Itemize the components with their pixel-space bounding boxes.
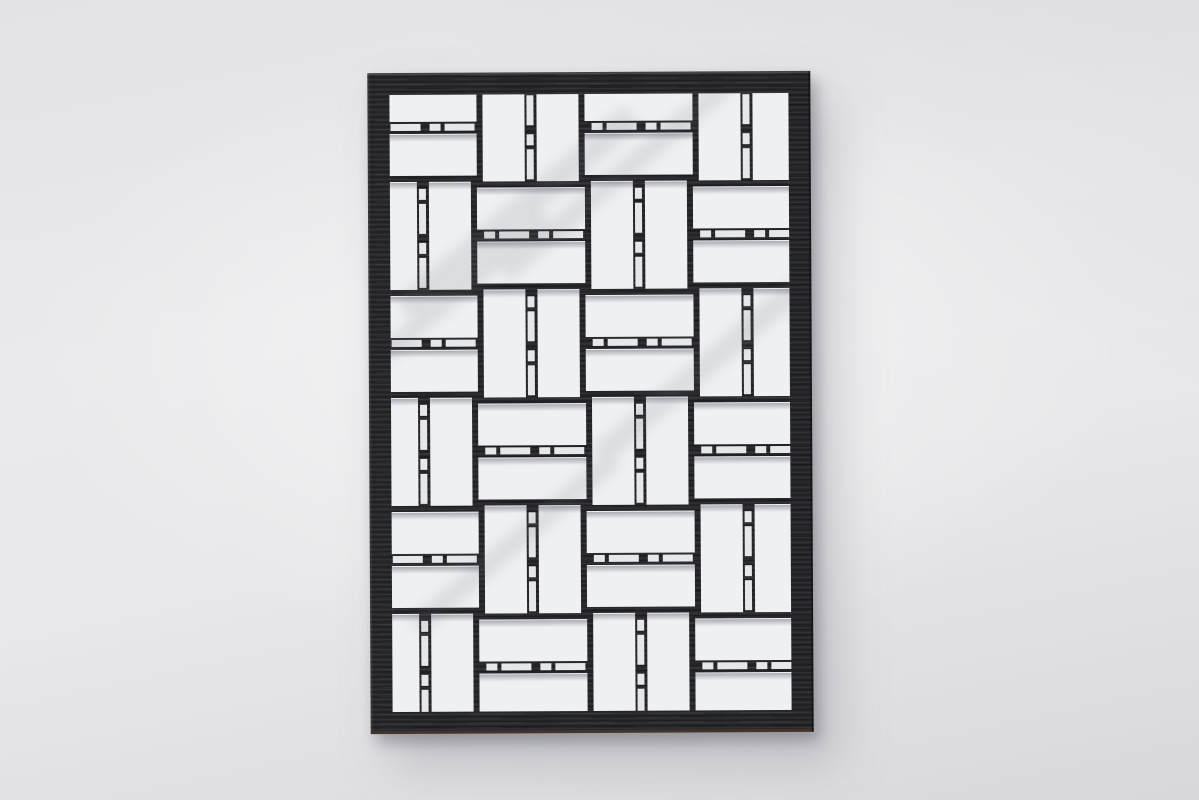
hole-shadow-sliver xyxy=(587,566,646,573)
hole-shadow-sliver xyxy=(587,512,646,519)
bead-hole xyxy=(663,554,693,561)
bead-hole xyxy=(391,124,421,131)
bead-hole xyxy=(420,405,427,416)
bead-hole xyxy=(421,636,428,666)
bead-hole xyxy=(636,473,643,503)
hole-shadow-sliver xyxy=(646,565,695,572)
bead-hole xyxy=(647,339,658,346)
hole-shadow-sliver xyxy=(592,398,634,405)
bead-hole xyxy=(421,675,428,686)
plank-hole-vertical xyxy=(539,564,581,613)
bead-hole xyxy=(700,230,711,237)
plank-hole-vertical xyxy=(646,455,688,504)
bead-hole xyxy=(430,124,441,131)
hole-shadow-sliver xyxy=(485,506,527,513)
bead-hole xyxy=(701,446,712,453)
plank-hole-vertical xyxy=(430,398,472,457)
hole-shadow-sliver xyxy=(429,183,471,190)
bead-hole xyxy=(527,149,534,179)
bead-hole xyxy=(527,296,534,307)
bead-hole xyxy=(743,133,750,144)
plank-hole-vertical xyxy=(484,348,526,397)
bead-hole xyxy=(445,124,475,131)
hole-shadow-sliver xyxy=(479,620,538,627)
bead-hole xyxy=(529,581,536,611)
hole-shadow-sliver xyxy=(694,403,753,410)
bead-hole xyxy=(419,243,426,254)
lattice-panel xyxy=(367,71,813,734)
hole-shadow-sliver xyxy=(478,404,537,411)
plank-hole-vertical xyxy=(429,182,471,241)
bead-hole xyxy=(500,447,530,454)
bead-hole xyxy=(745,580,752,610)
hole-shadow-sliver xyxy=(430,513,479,520)
hole-shadow-sliver xyxy=(701,505,743,512)
bead-hole xyxy=(528,311,535,341)
plank-hole-vertical xyxy=(645,239,687,288)
plank-hole-vertical xyxy=(430,457,472,506)
bead-hole xyxy=(555,663,585,670)
hole-shadow-sliver xyxy=(479,674,538,681)
bead-hole xyxy=(446,340,476,347)
hole-shadow-sliver xyxy=(693,187,752,194)
bead-hole xyxy=(637,620,644,631)
bead-hole xyxy=(447,556,477,563)
bead-hole xyxy=(717,662,747,669)
bead-hole xyxy=(745,565,752,576)
bead-hole xyxy=(528,365,535,395)
bead-hole xyxy=(635,242,642,253)
plank-hole-vertical xyxy=(593,613,635,672)
hole-shadow-sliver xyxy=(647,613,689,620)
plank-hole-vertical xyxy=(431,614,473,673)
bead-hole xyxy=(743,148,750,178)
bead-hole xyxy=(743,295,750,306)
hole-shadow-sliver xyxy=(428,135,477,142)
bead-hole xyxy=(419,189,426,200)
bead-hole xyxy=(431,340,442,347)
hole-shadow-sliver xyxy=(537,290,579,297)
bead-hole xyxy=(756,662,767,669)
hole-shadow-sliver xyxy=(699,289,741,296)
bead-hole xyxy=(637,674,644,685)
hole-shadow-sliver xyxy=(645,181,687,188)
bead-hole xyxy=(636,458,643,469)
plank-hole-vertical xyxy=(483,132,525,181)
bead-hole xyxy=(716,446,746,453)
bead-hole xyxy=(528,350,535,361)
bead-hole xyxy=(635,257,642,287)
bead-hole xyxy=(702,662,713,669)
hole-shadow-sliver xyxy=(537,458,586,465)
bead-hole xyxy=(646,123,657,130)
bead-hole xyxy=(635,188,642,199)
plank-hole-vertical xyxy=(699,131,741,180)
plank-hole-vertical xyxy=(483,289,525,348)
bead-hole xyxy=(486,663,497,670)
hole-shadow-sliver xyxy=(586,350,645,357)
hole-shadow-sliver xyxy=(693,241,752,248)
bead-hole xyxy=(540,663,551,670)
hole-shadow-sliver xyxy=(645,349,694,356)
bead-hole xyxy=(742,94,749,124)
hole-shadow-sliver xyxy=(429,351,478,358)
bead-hole xyxy=(432,556,443,563)
hole-shadow-sliver xyxy=(430,399,472,406)
bead-hole xyxy=(393,556,423,563)
bead-hole xyxy=(744,364,751,394)
bead-hole xyxy=(662,338,692,345)
hole-shadow-sliver xyxy=(695,619,754,626)
hole-shadow-sliver xyxy=(538,674,587,681)
hole-shadow-sliver xyxy=(483,290,525,297)
plank-hole-vertical xyxy=(645,180,687,239)
bead-hole xyxy=(420,459,427,470)
hole-shadow-sliver xyxy=(644,295,693,302)
bead-hole xyxy=(744,349,751,360)
bead-hole xyxy=(609,555,639,562)
bead-hole xyxy=(637,635,644,665)
bead-hole xyxy=(526,95,533,125)
bead-hole xyxy=(419,204,426,234)
plank-hole-vertical xyxy=(591,240,633,289)
hole-shadow-sliver xyxy=(538,620,587,627)
bead-hole xyxy=(420,474,427,504)
hole-shadow-sliver xyxy=(478,458,537,465)
bead-hole xyxy=(539,447,550,454)
photo-backdrop xyxy=(0,0,1199,800)
bead-hole xyxy=(754,230,765,237)
weave-pattern-svg xyxy=(367,71,813,734)
bead-hole xyxy=(501,663,531,670)
bead-hole xyxy=(554,447,584,454)
hole-shadow-sliver xyxy=(537,404,586,411)
bead-hole xyxy=(420,420,427,450)
plank-hole-vertical xyxy=(537,289,579,348)
bead-hole xyxy=(745,526,752,556)
plank-hole-vertical xyxy=(647,612,689,671)
plank-hole-vertical xyxy=(538,348,580,397)
bead-hole xyxy=(635,203,642,233)
plank-hole-vertical xyxy=(701,504,743,563)
hole-shadow-sliver xyxy=(646,511,695,518)
hole-shadow-sliver xyxy=(695,673,754,680)
bead-hole xyxy=(485,447,496,454)
bead-hole xyxy=(755,446,766,453)
bead-hole xyxy=(527,134,534,145)
bead-hole xyxy=(648,555,659,562)
hole-shadow-sliver xyxy=(694,457,753,464)
bead-hole xyxy=(594,555,605,562)
bead-hole xyxy=(715,230,745,237)
bead-hole xyxy=(608,339,638,346)
bead-hole xyxy=(593,339,604,346)
plank-hole-vertical xyxy=(701,563,743,612)
bead-hole xyxy=(529,566,536,577)
hole-shadow-sliver xyxy=(593,614,635,621)
bead-hole xyxy=(745,511,752,522)
hole-shadow-sliver xyxy=(585,296,644,303)
